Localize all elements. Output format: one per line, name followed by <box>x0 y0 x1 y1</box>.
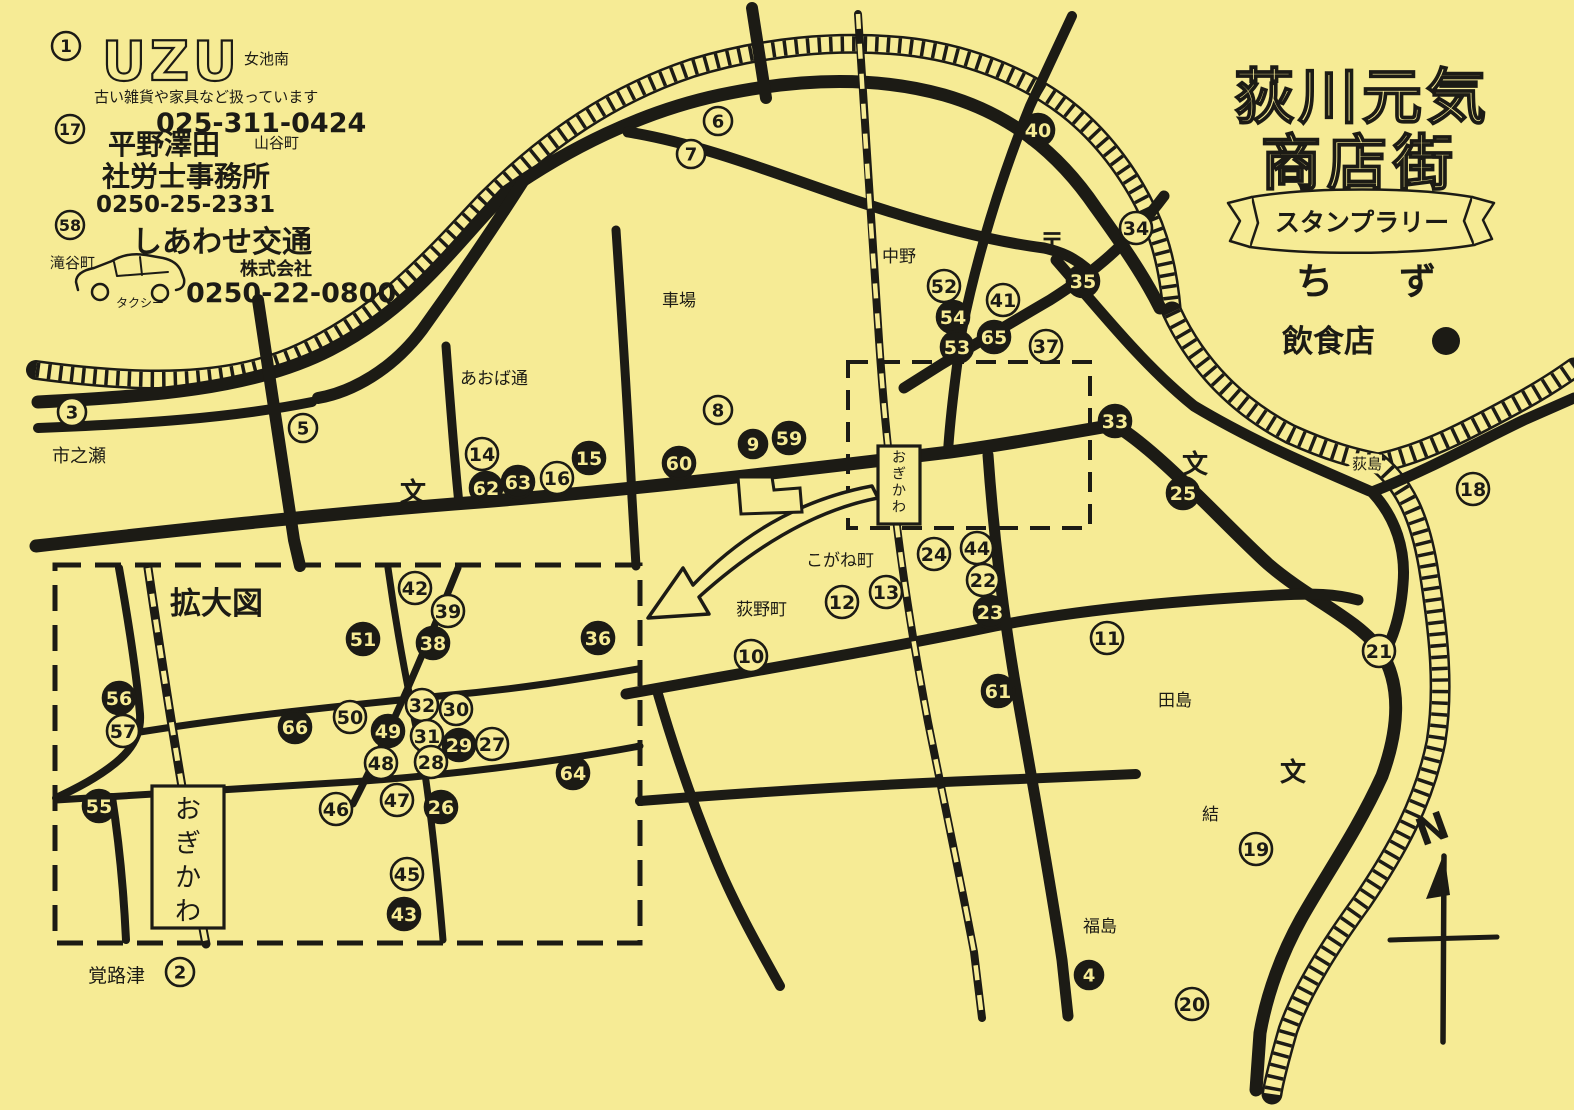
marker-63: 63 <box>502 466 534 498</box>
marker-66: 66 <box>279 711 311 743</box>
marker-10: 10 <box>735 640 767 672</box>
marker-9: 9 <box>739 430 767 458</box>
marker-26-number: 26 <box>428 797 454 819</box>
marker-4-number: 4 <box>1083 965 1096 986</box>
marker-35: 35 <box>1067 265 1099 297</box>
marker-51: 51 <box>347 623 379 655</box>
map-word-label: ちず <box>1296 260 1502 303</box>
place-label: 荻島 <box>1352 455 1382 473</box>
marker-8-number: 8 <box>712 400 725 421</box>
marker-58-number: 58 <box>59 216 81 235</box>
marker-62: 62 <box>470 472 502 504</box>
place-label: あおば通 <box>460 369 528 389</box>
marker-61: 61 <box>982 675 1014 707</box>
marker-52: 52 <box>928 270 960 302</box>
compass-horizontal-line <box>1390 937 1497 940</box>
marker-34: 34 <box>1120 212 1152 244</box>
marker-2-number: 2 <box>174 962 187 983</box>
marker-51-number: 51 <box>350 629 376 651</box>
station-name-char: か <box>892 483 906 499</box>
marker-19: 19 <box>1240 833 1272 865</box>
place-label: 市之瀬 <box>52 446 106 467</box>
place-label: 〒 <box>1040 228 1064 256</box>
station-name-char: わ <box>175 897 201 927</box>
hirano-phone: 0250-25-2331 <box>96 192 275 218</box>
station-name-char: お <box>175 795 201 825</box>
marker-61-number: 61 <box>985 681 1011 703</box>
uzu-logo: UZU <box>102 30 241 93</box>
marker-13-number: 13 <box>873 582 899 604</box>
banner-label: スタンプラリー <box>1275 208 1449 237</box>
marker-36: 36 <box>582 622 614 654</box>
marker-59: 59 <box>773 422 805 454</box>
marker-3: 3 <box>58 398 86 426</box>
marker-4: 4 <box>1075 961 1103 989</box>
marker-50-number: 50 <box>337 707 363 729</box>
marker-52-number: 52 <box>931 276 957 298</box>
marker-38-number: 38 <box>420 633 446 655</box>
marker-62-number: 62 <box>473 478 499 500</box>
marker-11-number: 11 <box>1094 628 1120 650</box>
marker-63-number: 63 <box>505 472 531 494</box>
marker-57-number: 57 <box>110 721 136 743</box>
station-box: おぎかわ <box>878 446 920 524</box>
marker-33: 33 <box>1099 405 1131 437</box>
marker-46-number: 46 <box>323 799 349 821</box>
marker-55: 55 <box>83 790 115 822</box>
marker-49: 49 <box>372 715 404 747</box>
shiawase-name: しあわせ交通 <box>132 225 312 260</box>
marker-10-number: 10 <box>738 646 764 668</box>
marker-7: 7 <box>677 140 705 168</box>
marker-56: 56 <box>103 682 135 714</box>
marker-42-number: 42 <box>402 578 428 600</box>
marker-2: 2 <box>166 958 194 986</box>
station-name-char: ぎ <box>175 829 201 859</box>
marker-33-number: 33 <box>1102 411 1128 433</box>
marker-6: 6 <box>704 107 732 135</box>
place-label: 覚路津 <box>88 965 145 987</box>
marker-60: 60 <box>663 447 695 479</box>
marker-25: 25 <box>1167 477 1199 509</box>
station-name-char: お <box>892 450 906 466</box>
marker-46: 46 <box>320 793 352 825</box>
marker-39-number: 39 <box>435 601 461 623</box>
marker-54-number: 54 <box>940 307 966 329</box>
marker-64: 64 <box>557 757 589 789</box>
marker-47-number: 47 <box>384 790 410 812</box>
marker-48-number: 48 <box>368 753 394 775</box>
marker-23: 23 <box>974 596 1006 628</box>
marker-43-number: 43 <box>391 904 417 926</box>
marker-8: 8 <box>704 396 732 424</box>
marker-26: 26 <box>425 791 457 823</box>
hirano-area: 山谷町 <box>254 134 299 152</box>
marker-41-number: 41 <box>990 290 1016 312</box>
marker-15: 15 <box>573 442 605 474</box>
marker-27-number: 27 <box>479 734 505 756</box>
marker-30-number: 30 <box>443 699 469 721</box>
marker-40: 40 <box>1022 114 1054 146</box>
marker-45: 45 <box>391 858 423 890</box>
marker-16: 16 <box>541 462 573 494</box>
marker-3-number: 3 <box>66 402 79 423</box>
marker-28-number: 28 <box>418 752 444 774</box>
marker-41: 41 <box>987 284 1019 316</box>
restaurant-filled-circle-icon <box>1432 327 1460 355</box>
marker-24: 24 <box>918 538 950 570</box>
marker-53: 53 <box>941 331 973 363</box>
place-label: 文 <box>400 477 427 508</box>
marker-47: 47 <box>381 784 413 816</box>
marker-43: 43 <box>388 898 420 930</box>
place-label: 拡大図 <box>170 586 263 622</box>
marker-30: 30 <box>440 693 472 725</box>
marker-53-number: 53 <box>944 337 970 359</box>
marker-11: 11 <box>1091 622 1123 654</box>
marker-5-number: 5 <box>297 418 310 439</box>
marker-16-number: 16 <box>544 468 570 490</box>
marker-50: 50 <box>334 701 366 733</box>
marker-34-number: 34 <box>1123 218 1149 240</box>
restaurant-legend-label: 飲食店 <box>1282 324 1375 360</box>
marker-60-number: 60 <box>666 453 692 475</box>
marker-24-number: 24 <box>921 544 947 566</box>
station-box: おぎかわ <box>152 786 224 928</box>
marker-25-number: 25 <box>1170 483 1196 505</box>
marker-57: 57 <box>107 715 139 747</box>
map-canvas: おぎかわおぎかわ 市之瀬あおば通車場中野〒こがね町荻野町田島結福島荻島覚路津拡大… <box>0 0 1574 1110</box>
marker-27: 27 <box>476 728 508 760</box>
hirano-name: 平野澤田 <box>108 128 220 161</box>
marker-28: 28 <box>415 746 447 778</box>
marker-66-number: 66 <box>282 717 308 739</box>
uzu-area: 女池南 <box>244 50 289 68</box>
marker-32: 32 <box>406 689 438 721</box>
shiawase-vehicle: タクシー <box>116 296 164 310</box>
marker-19-number: 19 <box>1243 839 1269 861</box>
marker-13: 13 <box>870 576 902 608</box>
station-name-char: か <box>175 863 201 893</box>
shiawase-phone: 0250-22-0800 <box>186 278 396 309</box>
place-label: 荻野町 <box>736 600 787 620</box>
marker-6-number: 6 <box>712 111 725 132</box>
marker-37-number: 37 <box>1033 336 1059 358</box>
uzu-description: 古い雑貨や家具など扱っています <box>94 88 318 106</box>
marker-59-number: 59 <box>776 428 802 450</box>
marker-12: 12 <box>826 586 858 618</box>
marker-29: 29 <box>443 729 475 761</box>
marker-64-number: 64 <box>560 763 586 785</box>
map-title-line1: 荻川元気 <box>1234 63 1490 133</box>
compass-vertical-line <box>1443 856 1444 1042</box>
marker-21: 21 <box>1363 635 1395 667</box>
place-label: 田島 <box>1158 691 1192 711</box>
marker-5: 5 <box>289 414 317 442</box>
marker-40-number: 40 <box>1025 120 1051 142</box>
marker-39: 39 <box>432 595 464 627</box>
marker-42: 42 <box>399 572 431 604</box>
marker-14-number: 14 <box>469 444 495 466</box>
marker-23-number: 23 <box>977 602 1003 624</box>
marker-22-number: 22 <box>970 570 996 592</box>
marker-44: 44 <box>961 532 993 564</box>
marker-37: 37 <box>1030 330 1062 362</box>
banner-ribbon: スタンプラリー <box>1228 190 1494 253</box>
marker-7-number: 7 <box>685 144 698 165</box>
marker-38: 38 <box>417 627 449 659</box>
place-label: 車場 <box>662 291 696 311</box>
shiawase-name2: 株式会社 <box>240 258 312 280</box>
marker-22: 22 <box>967 564 999 596</box>
marker-49-number: 49 <box>375 721 401 743</box>
marker-12-number: 12 <box>829 592 855 614</box>
marker-29-number: 29 <box>446 735 472 757</box>
marker-20-number: 20 <box>1179 994 1205 1016</box>
marker-20: 20 <box>1176 988 1208 1020</box>
marker-35-number: 35 <box>1070 271 1096 293</box>
marker-31-number: 31 <box>414 726 440 748</box>
marker-44-number: 44 <box>964 538 990 560</box>
marker-9-number: 9 <box>747 434 760 455</box>
marker-1-number: 1 <box>60 37 72 57</box>
marker-65: 65 <box>978 321 1010 353</box>
place-label: 文 <box>1280 757 1307 788</box>
marker-18: 18 <box>1457 473 1489 505</box>
place-label: 文 <box>1182 449 1209 480</box>
station-name-char: わ <box>892 500 906 516</box>
marker-18-number: 18 <box>1460 479 1486 501</box>
scanned-stamp-rally-map: おぎかわおぎかわ 市之瀬あおば通車場中野〒こがね町荻野町田島結福島荻島覚路津拡大… <box>0 0 1574 1110</box>
hirano-name2: 社労士事務所 <box>102 160 270 193</box>
marker-17-number: 17 <box>59 120 81 139</box>
marker-36-number: 36 <box>585 628 611 650</box>
marker-56-number: 56 <box>106 688 132 710</box>
marker-65-number: 65 <box>981 327 1007 349</box>
marker-45-number: 45 <box>394 864 420 886</box>
marker-55-number: 55 <box>86 796 112 818</box>
place-label: こがね町 <box>806 551 874 571</box>
place-label: 中野 <box>882 247 916 267</box>
marker-14: 14 <box>466 438 498 470</box>
marker-21-number: 21 <box>1366 641 1392 663</box>
place-label: 福島 <box>1083 917 1117 937</box>
marker-54: 54 <box>937 301 969 333</box>
marker-48: 48 <box>365 747 397 779</box>
station-name-char: ぎ <box>892 467 906 483</box>
marker-32-number: 32 <box>409 695 435 717</box>
place-label: 結 <box>1202 805 1219 825</box>
marker-15-number: 15 <box>576 448 602 470</box>
